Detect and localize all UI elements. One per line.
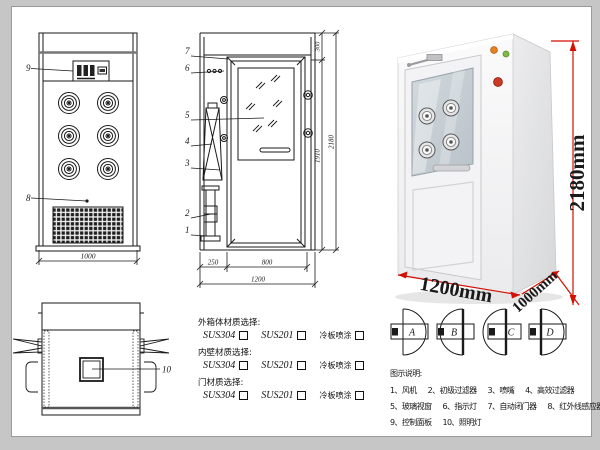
material-group-inner: 内壁材质选择: SUS304 SUS201 冷板喷涂 — [196, 346, 386, 371]
dim-front-width: 1000 — [81, 252, 96, 261]
red-button — [494, 78, 503, 87]
legend-item: 1、风机 — [390, 386, 417, 395]
door-config-label: B — [451, 328, 457, 339]
material-group-title: 外箱体材质选择: — [198, 316, 386, 328]
spec-sheet-canvas: 9 8 1000 — [0, 0, 600, 450]
door-handle — [433, 165, 470, 171]
part-label-6: 6 — [185, 63, 190, 73]
photo-dim-height: 2180mm — [565, 134, 589, 211]
legend-title: 图示说明: — [390, 368, 590, 379]
material-option-label: 冷板喷涂 — [319, 330, 351, 341]
door-config-b: B — [434, 302, 478, 362]
material-option-label: SUS201 — [261, 360, 293, 371]
legend-line: 1、风机 2、初级过滤器 3、喷嘴 4、高效过滤器 — [390, 383, 590, 399]
legend-item: 3、喷嘴 — [488, 386, 515, 395]
legend-item: 7、自动闭门器 — [488, 402, 537, 411]
door-config-label: C — [508, 328, 515, 339]
legend-item: 6、指示灯 — [442, 402, 476, 411]
material-group-outer: 外箱体材质选择: SUS304 SUS201 冷板喷涂 — [196, 316, 386, 341]
part-label-10: 10 — [162, 365, 172, 375]
control-panel — [73, 61, 109, 81]
door-config-label: A — [408, 328, 416, 339]
material-checkbox[interactable] — [355, 391, 364, 400]
photo-3d-render: 2180mm 1200mm 1000mm — [383, 12, 592, 312]
door-config-a: A — [388, 302, 432, 362]
part-label-4: 4 — [185, 136, 190, 146]
filter-unit — [203, 103, 222, 180]
material-checkbox[interactable] — [297, 391, 306, 400]
dim-left-250: 250 — [208, 259, 219, 267]
hinge-knuckles — [221, 91, 313, 142]
material-checkbox[interactable] — [355, 361, 364, 370]
material-checkbox[interactable] — [239, 361, 248, 370]
green-light — [503, 51, 509, 57]
material-group-title: 内壁材质选择: — [198, 346, 386, 358]
legend-item: 8、红外线感应器 — [547, 402, 600, 411]
legend-panel: 图示说明: 1、风机 2、初级过滤器 3、喷嘴 4、高效过滤器 5、玻璃视窗 6… — [390, 368, 590, 431]
return-air-grille — [53, 207, 123, 243]
material-checkbox[interactable] — [239, 391, 248, 400]
door-config-c: C — [480, 302, 524, 362]
material-option-label: SUS201 — [261, 390, 293, 401]
material-option-label: 冷板喷涂 — [319, 360, 351, 371]
material-option-label: SUS304 — [203, 360, 235, 371]
ceiling-lamp — [80, 358, 103, 381]
plan-outline — [38, 303, 144, 415]
door-config-label: D — [545, 328, 554, 339]
photo-door — [405, 55, 481, 280]
legend-line: 5、玻璃视窗 6、指示灯 7、自动闭门器 8、红外线感应器 — [390, 399, 590, 415]
top-view-drawing: 10 — [8, 295, 193, 435]
material-checkbox[interactable] — [297, 331, 306, 340]
legend-line: 9、控制面板 10、照明灯 — [390, 415, 590, 431]
legend-item: 5、玻璃视窗 — [390, 402, 432, 411]
legend-item: 2、初级过滤器 — [428, 386, 477, 395]
part-label-2: 2 — [185, 208, 190, 218]
nozzles-front — [59, 93, 119, 180]
part-label-3: 3 — [184, 158, 190, 168]
section-view-drawing: 7 6 5 4 3 2 1 300 1910 2180 — [178, 10, 350, 295]
side-fixtures — [13, 339, 169, 392]
legend-item: 4、高效过滤器 — [525, 386, 574, 395]
legend-item: 9、控制面板 — [390, 418, 432, 427]
material-option-label: 冷板喷涂 — [319, 390, 351, 401]
materials-panel: 外箱体材质选择: SUS304 SUS201 冷板喷涂 内壁材质选择: SUS3… — [196, 316, 386, 406]
material-option-label: SUS304 — [203, 390, 235, 401]
front-view-drawing: 9 8 1000 — [15, 10, 180, 285]
glass-hatch-marks — [246, 75, 282, 132]
material-option-label: SUS201 — [261, 330, 293, 341]
part-label-8: 8 — [26, 193, 31, 203]
part-label-9: 9 — [26, 63, 31, 73]
part-label-1: 1 — [185, 225, 190, 235]
dim-inner-height: 1910 — [314, 149, 322, 164]
material-group-title: 门材质选择: — [198, 376, 386, 388]
legend-item: 10、照明灯 — [442, 418, 481, 427]
part-label-7: 7 — [185, 46, 190, 56]
dim-door-800: 800 — [262, 259, 273, 267]
material-checkbox[interactable] — [297, 361, 306, 370]
door-config-d: D — [526, 302, 570, 362]
dim-total-height: 2180 — [328, 135, 336, 150]
material-group-door: 门材质选择: SUS304 SUS201 冷板喷涂 — [196, 376, 386, 401]
material-checkbox[interactable] — [239, 331, 248, 340]
material-option-label: SUS304 — [203, 330, 235, 341]
cabinet-side-face — [513, 34, 556, 294]
part-label-5: 5 — [185, 110, 190, 120]
door-frame — [227, 57, 305, 247]
dim-total-1200: 1200 — [251, 276, 266, 284]
orange-light — [491, 47, 498, 54]
material-checkbox[interactable] — [355, 331, 364, 340]
dim-top-300: 300 — [315, 41, 322, 53]
